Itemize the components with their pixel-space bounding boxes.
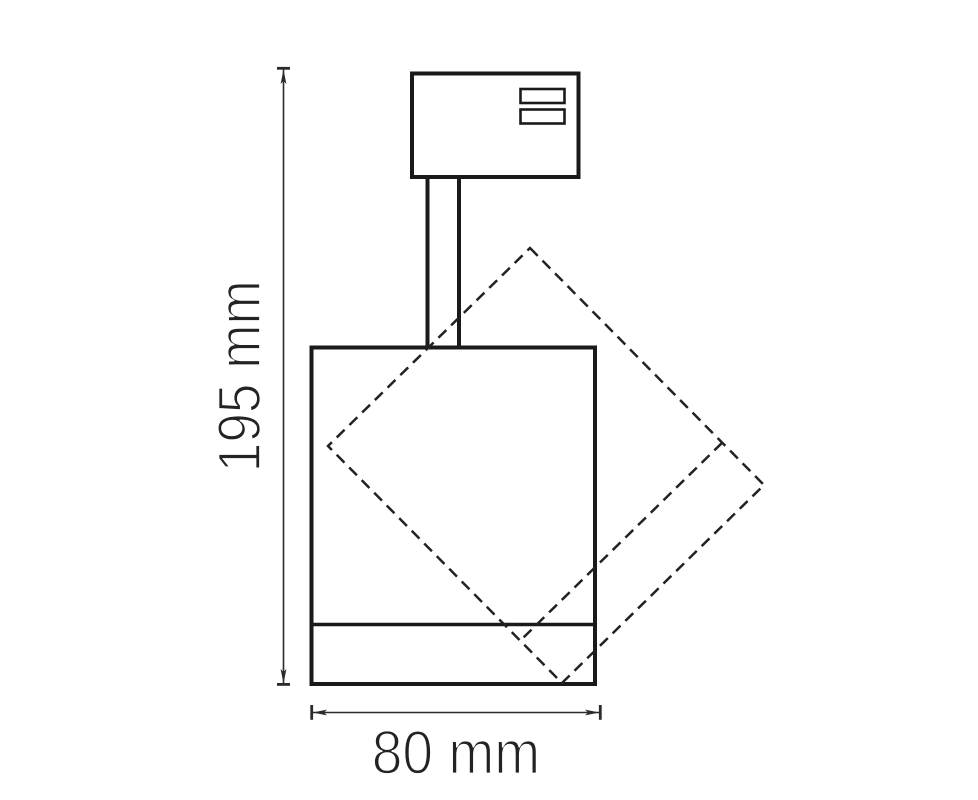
svg-text:195 mm: 195 mm	[205, 280, 273, 472]
svg-text:80 mm: 80 mm	[372, 719, 541, 788]
